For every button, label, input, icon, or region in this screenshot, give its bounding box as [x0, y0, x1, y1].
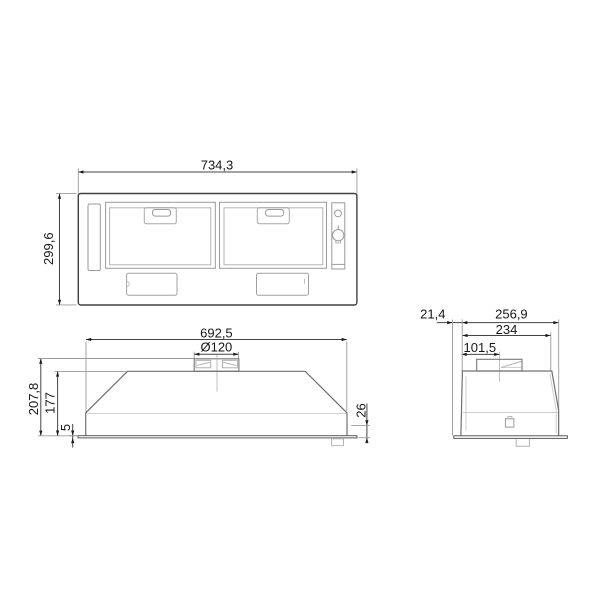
svg-text:26: 26 [353, 403, 368, 417]
svg-text:207,8: 207,8 [26, 383, 41, 416]
svg-text:177: 177 [43, 392, 58, 414]
svg-text:21,4: 21,4 [420, 306, 445, 321]
svg-text:256,9: 256,9 [495, 306, 528, 321]
svg-text:5: 5 [58, 424, 73, 431]
svg-text:Ø120: Ø120 [200, 340, 232, 355]
svg-text:734,3: 734,3 [201, 157, 234, 172]
svg-text:101,5: 101,5 [464, 340, 497, 355]
svg-text:299,6: 299,6 [41, 232, 56, 265]
svg-text:692,5: 692,5 [200, 325, 233, 340]
svg-text:234: 234 [496, 322, 518, 337]
